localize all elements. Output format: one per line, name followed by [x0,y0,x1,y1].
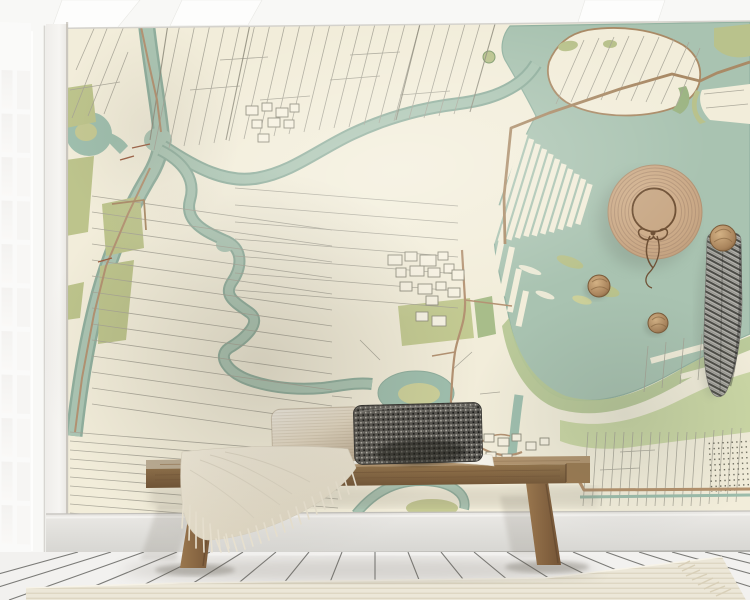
scene [0,0,750,600]
orchard-rows [708,438,750,492]
wall-corner-seam [66,22,68,516]
ceiling-beam [170,0,262,26]
bench-seat-end-cap [566,463,590,483]
pillow-dark [353,402,483,466]
wall-return [46,24,68,554]
window [0,22,46,554]
wall-knob [588,275,610,297]
mockup-photo [0,0,750,600]
ceiling-beam [578,0,665,22]
wall-knob [648,313,668,333]
